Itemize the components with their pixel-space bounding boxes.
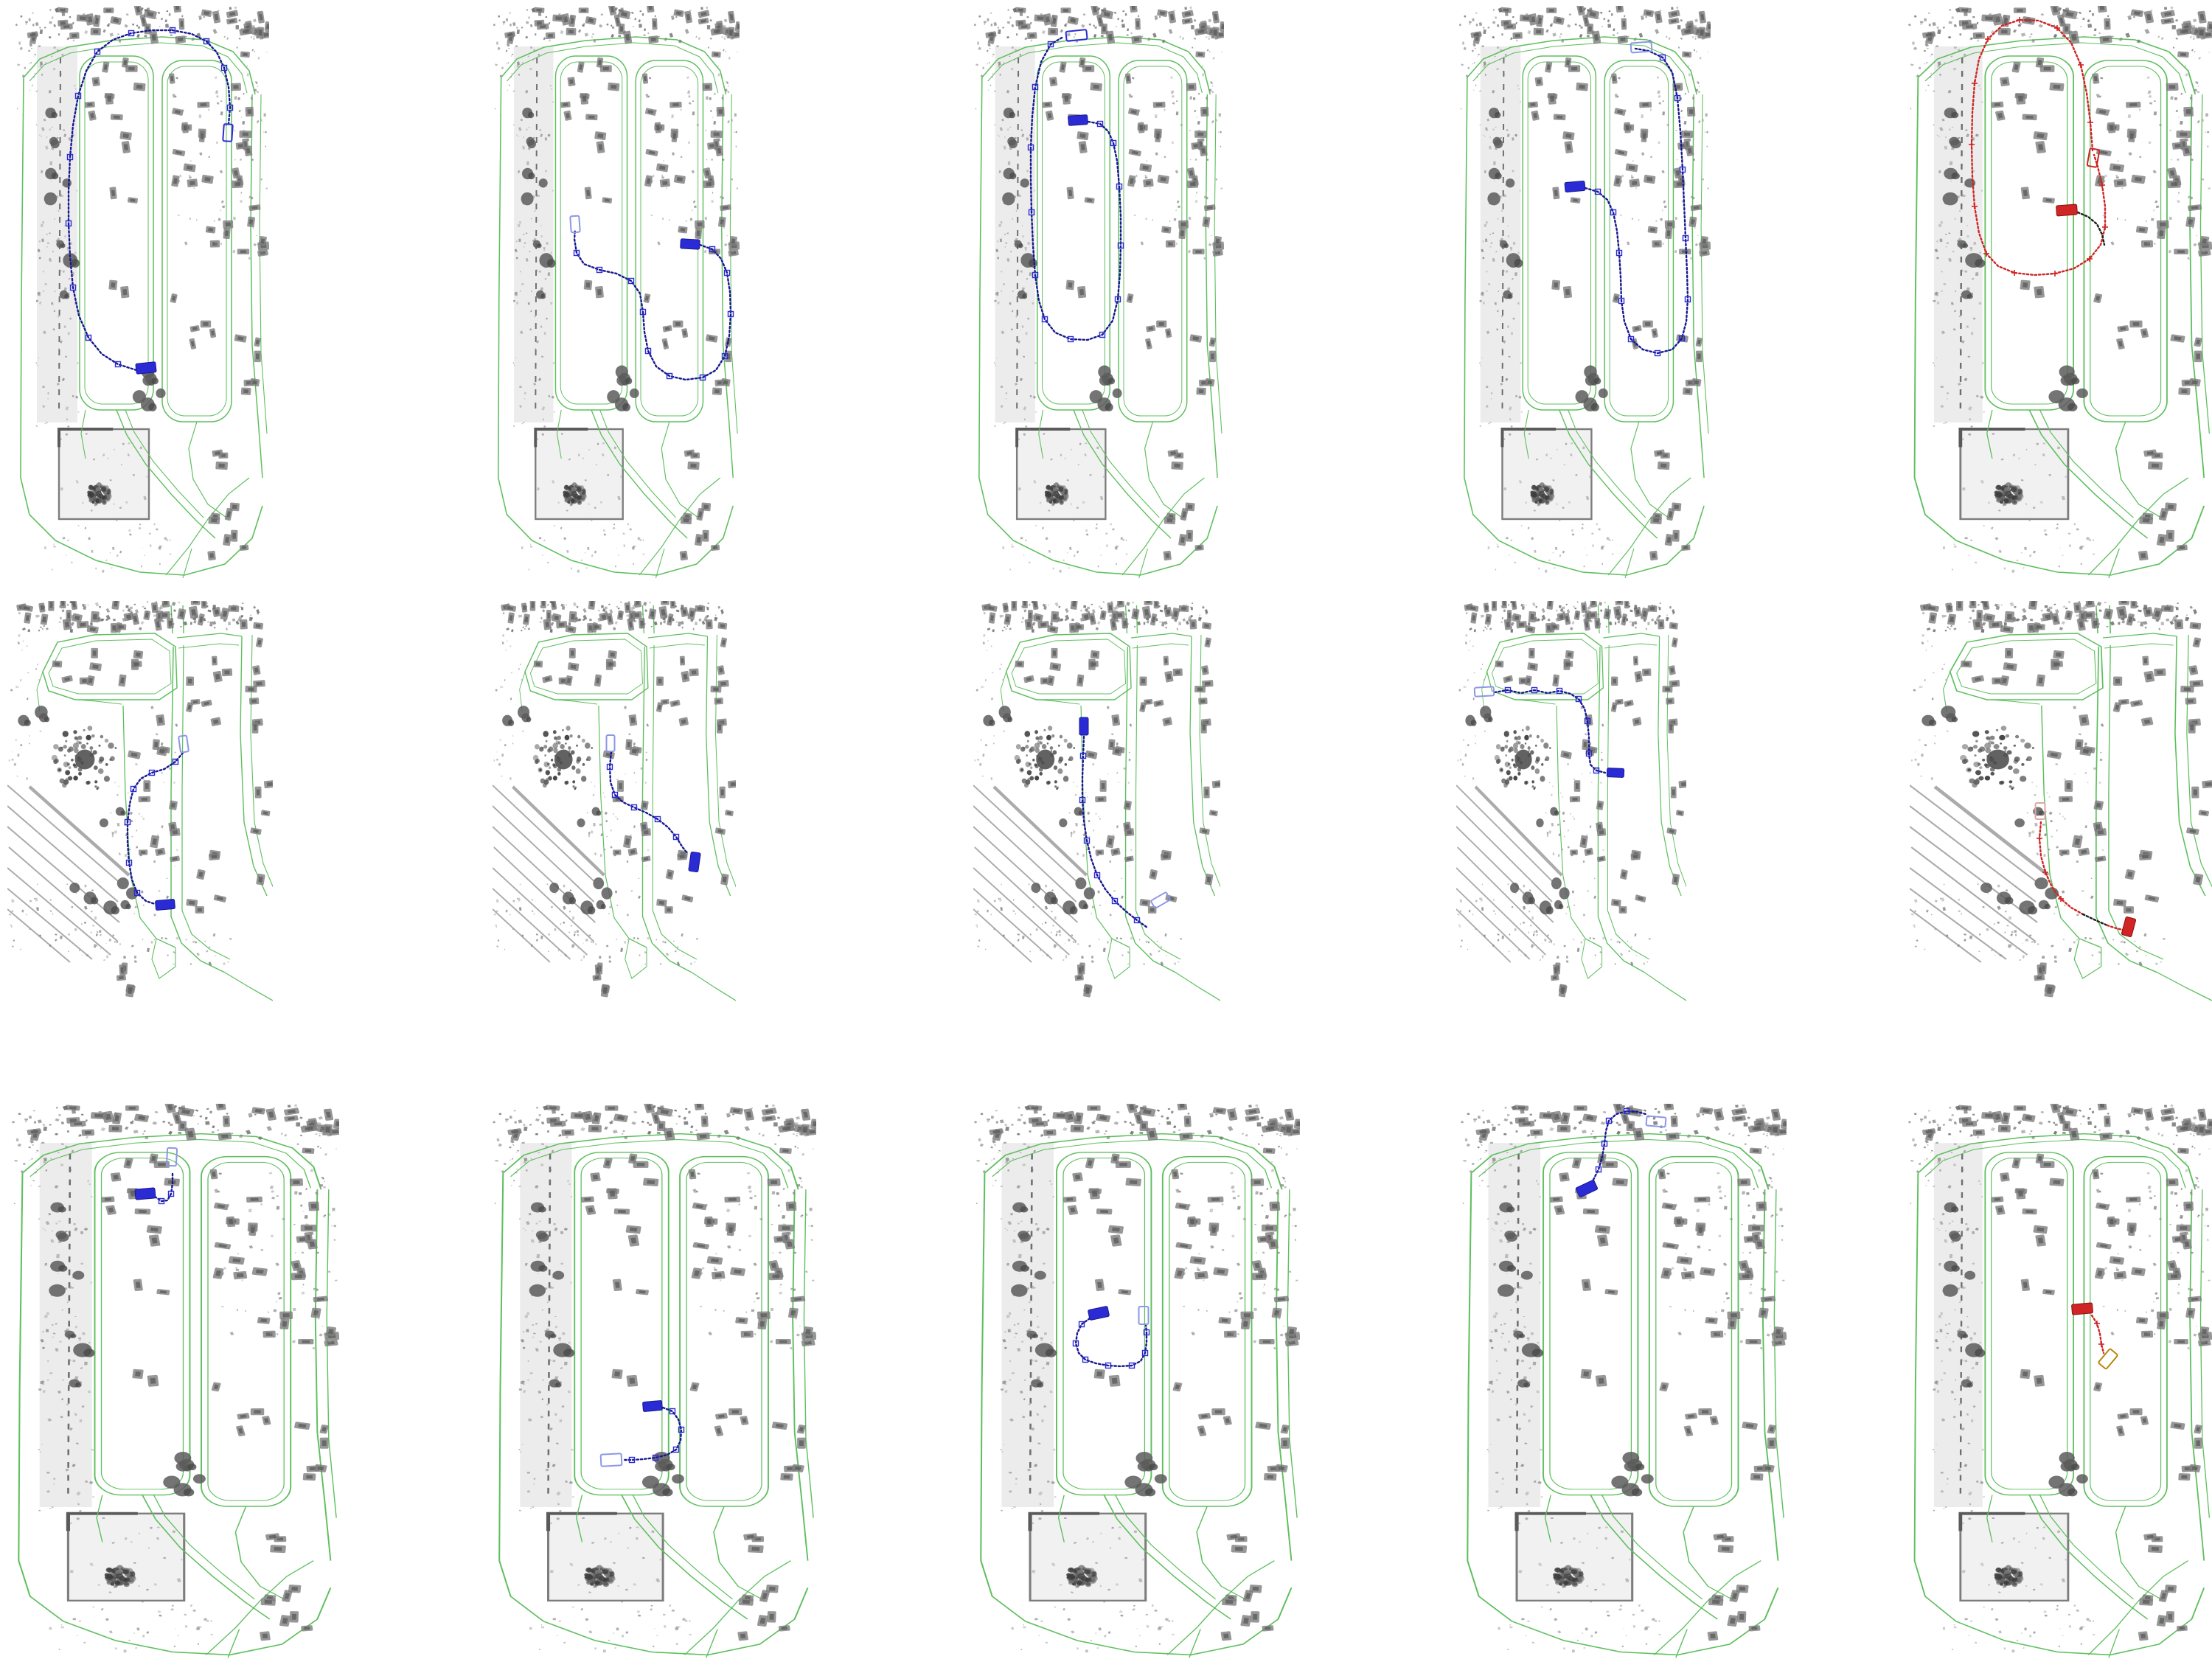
map-background	[7, 601, 273, 1001]
trajectory-layer	[2071, 1303, 2118, 1369]
vehicle-marker	[1088, 1306, 1109, 1320]
vehicle-marker	[1068, 115, 1088, 126]
map-background	[15, 6, 269, 578]
trajectory-panel-r1c1	[15, 6, 269, 585]
trajectory-panel-r2c1	[7, 601, 273, 1096]
trajectory-panel-r1c3	[973, 6, 1224, 585]
goal-marker	[178, 735, 189, 752]
vehicle-marker	[155, 899, 175, 910]
map-background	[974, 6, 1224, 578]
trajectory-panel-r1c5	[1907, 6, 2212, 585]
vehicle-marker	[2071, 1303, 2093, 1315]
trajectory-panel-r1c2	[493, 6, 740, 585]
trajectory-panel-r3c3	[973, 1104, 1300, 1659]
trajectory-path-0	[155, 1174, 173, 1201]
trajectory-path-0	[1076, 1318, 1147, 1366]
goal-marker	[601, 1453, 622, 1466]
trajectory-path-0	[1495, 690, 1605, 773]
trajectory-panel-r3c4	[1460, 1104, 1787, 1659]
vehicle-marker	[2121, 917, 2136, 937]
trajectory-path-1	[2078, 212, 2104, 245]
map-background	[1908, 6, 2212, 578]
trajectory-panel-r3c5	[1907, 1104, 2212, 1659]
map-background	[12, 1104, 339, 1658]
trajectory-panel-r2c5	[1910, 601, 2212, 1096]
trajectory-figure-grid	[0, 0, 2212, 1659]
vehicle-marker	[135, 1188, 156, 1200]
trajectory-path-2	[2107, 925, 2123, 930]
vehicle-marker	[1565, 181, 1585, 192]
trajectory-path-0	[1031, 37, 1121, 340]
map-background	[1461, 1104, 1787, 1658]
trajectory-panel-r2c4	[1456, 601, 1686, 1096]
vehicle-marker	[2056, 204, 2078, 216]
vehicle-marker	[1607, 768, 1624, 778]
trajectory-layer	[570, 216, 733, 380]
trajectory-layer	[1074, 1306, 1150, 1368]
trajectory-panel-r2c2	[493, 601, 736, 1096]
trajectory-panel-r3c2	[492, 1104, 816, 1659]
vehicle-marker	[136, 362, 156, 375]
goal-marker	[2098, 1349, 2118, 1369]
map-background	[973, 601, 1220, 1001]
map-background	[974, 1104, 1300, 1658]
map-background	[493, 601, 736, 1001]
map-background	[1908, 1104, 2212, 1658]
map-background	[1459, 6, 1711, 578]
trajectory-panel-r2c3	[973, 601, 1220, 1096]
trajectory-layer	[1475, 686, 1624, 777]
trajectory-path-1	[2083, 914, 2107, 925]
trajectory-layer	[125, 735, 189, 910]
vehicle-marker	[642, 1400, 662, 1411]
trajectory-path-0	[1585, 49, 1688, 353]
trajectory-layer	[601, 1400, 684, 1466]
vehicle-marker	[1079, 717, 1088, 735]
trajectory-panel-r3c1	[11, 1104, 339, 1659]
goal-marker	[607, 735, 615, 751]
map-background	[1910, 601, 2212, 1001]
vehicle-marker	[681, 239, 700, 249]
vehicle-marker	[1576, 1180, 1598, 1197]
trajectory-path-0	[574, 229, 731, 380]
trajectory-path-0	[625, 1408, 681, 1460]
goal-marker	[570, 216, 580, 233]
trajectory-layer	[2036, 803, 2136, 937]
vehicle-marker	[689, 852, 700, 872]
map-background	[1456, 601, 1686, 1001]
map-background	[493, 1104, 816, 1658]
trajectory-path-0	[2092, 1315, 2104, 1353]
goal-marker	[1139, 1307, 1149, 1324]
goal-marker	[1631, 42, 1652, 53]
trajectory-panel-r1c4	[1458, 6, 1711, 585]
map-background	[493, 6, 740, 578]
